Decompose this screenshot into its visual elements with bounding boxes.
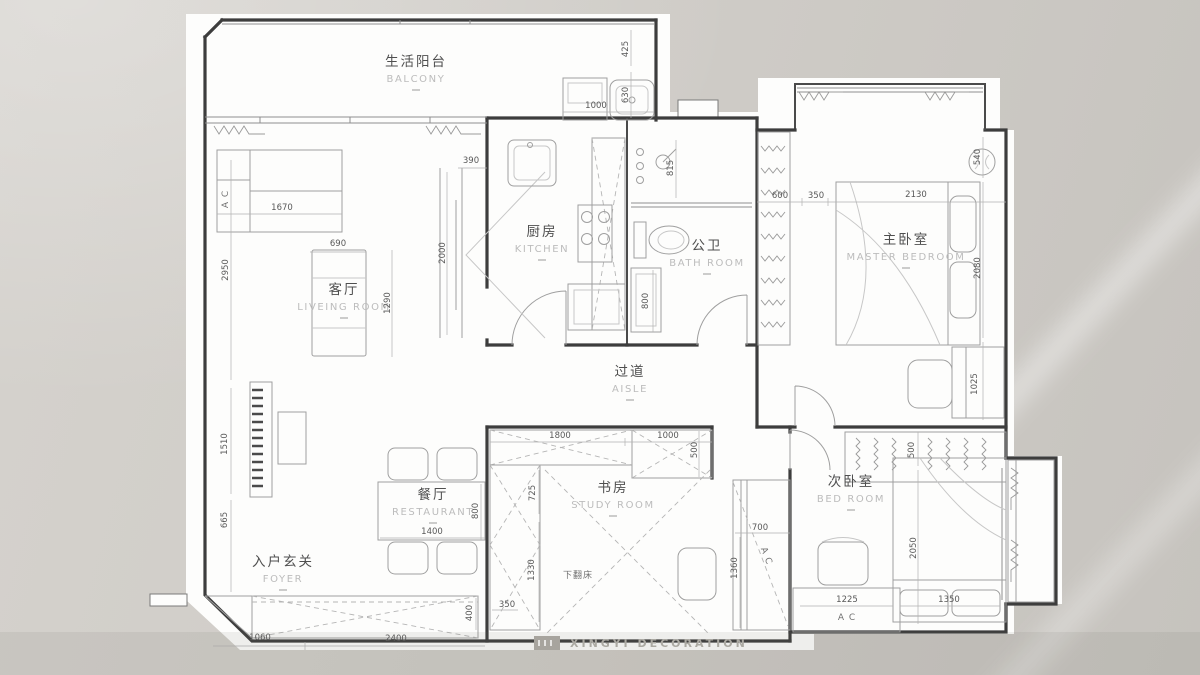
floor-plan-page: 生活阳台BALCONY厨房KITCHEN公卫BATH ROOM主卧室MASTER… [0,0,1200,675]
floor-plan-canvas: 生活阳台BALCONY厨房KITCHEN公卫BATH ROOM主卧室MASTER… [0,0,1200,675]
wall-stub [150,594,187,606]
background-shade [0,632,1200,675]
duct-stub [678,100,718,118]
plan-silhouette [150,14,1062,650]
